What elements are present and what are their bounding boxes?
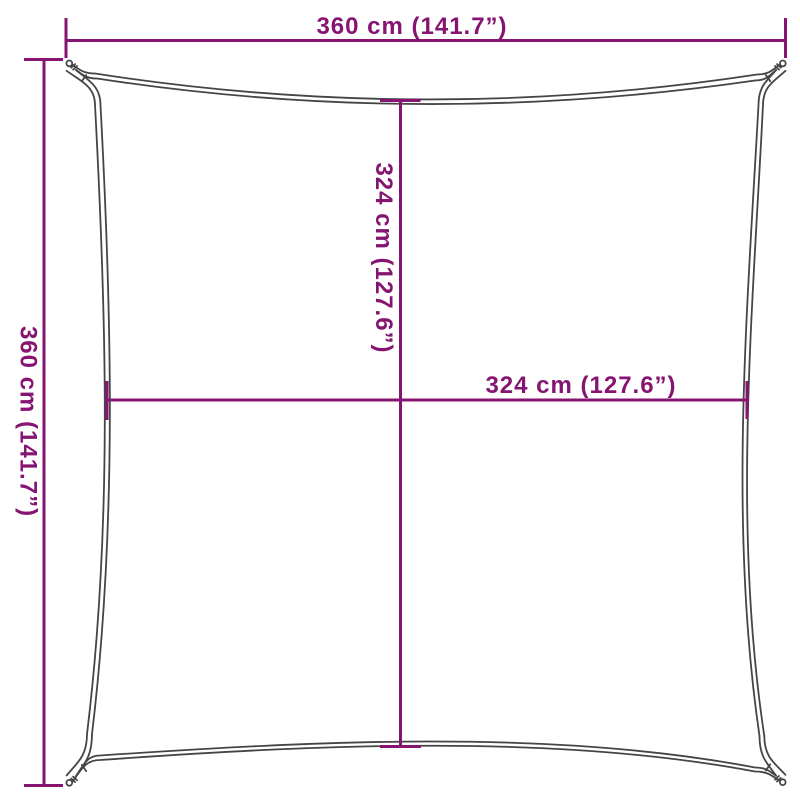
svg-text:324 cm (127.6”): 324 cm (127.6”) xyxy=(370,162,397,353)
svg-text:324 cm (127.6”): 324 cm (127.6”) xyxy=(485,372,676,399)
svg-text:360 cm (141.7”): 360 cm (141.7”) xyxy=(15,326,42,517)
svg-text:360 cm (141.7”): 360 cm (141.7”) xyxy=(316,13,507,40)
